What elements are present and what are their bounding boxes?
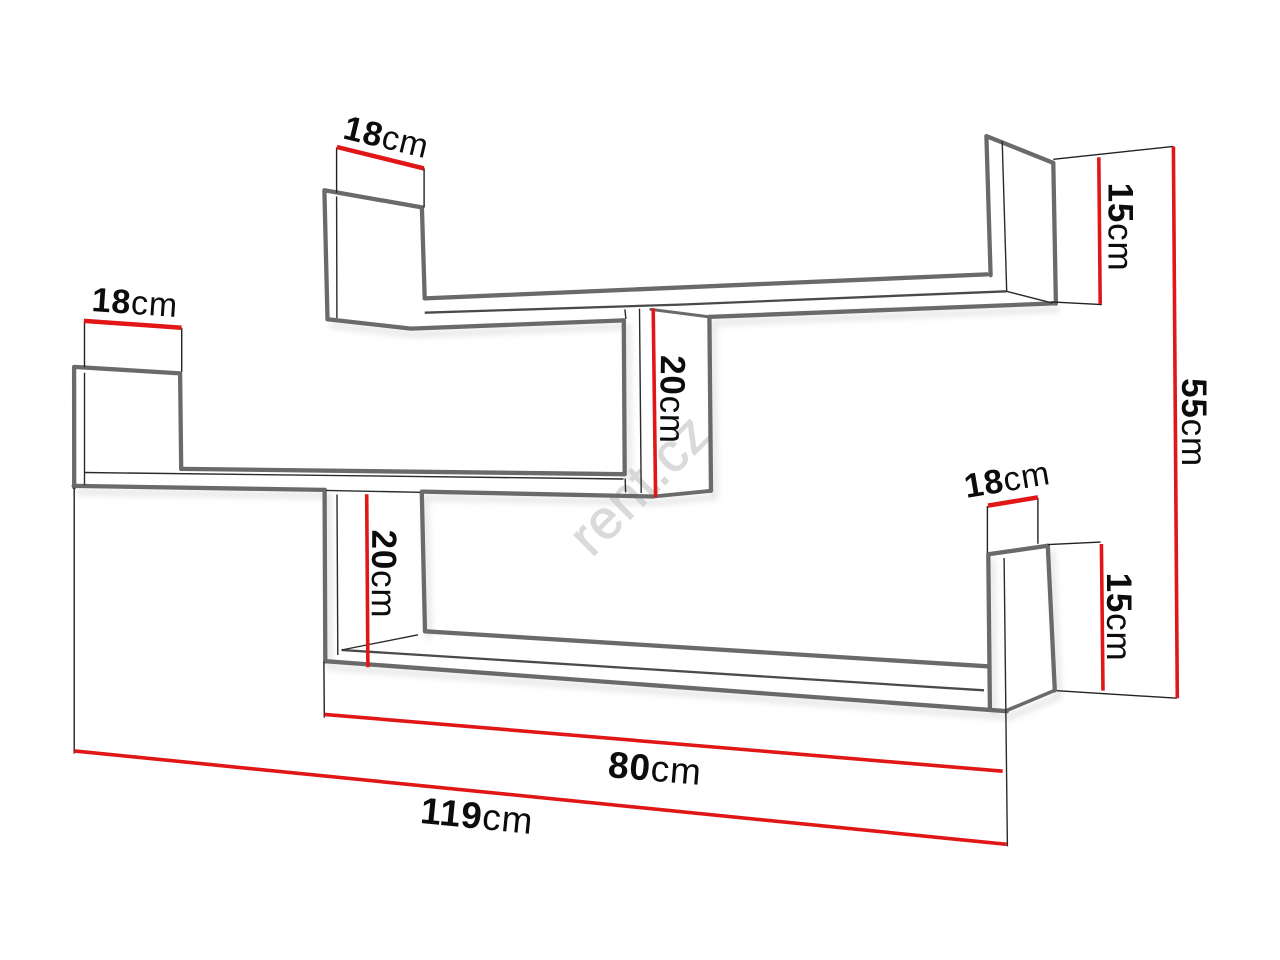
svg-text:80cm: 80cm <box>607 744 704 793</box>
svg-text:55cm: 55cm <box>1174 378 1213 467</box>
svg-text:20cm: 20cm <box>364 529 404 618</box>
svg-text:18cm: 18cm <box>91 281 180 325</box>
svg-text:20cm: 20cm <box>652 355 692 444</box>
svg-text:15cm: 15cm <box>1099 573 1138 662</box>
svg-text:15cm: 15cm <box>1101 183 1140 272</box>
